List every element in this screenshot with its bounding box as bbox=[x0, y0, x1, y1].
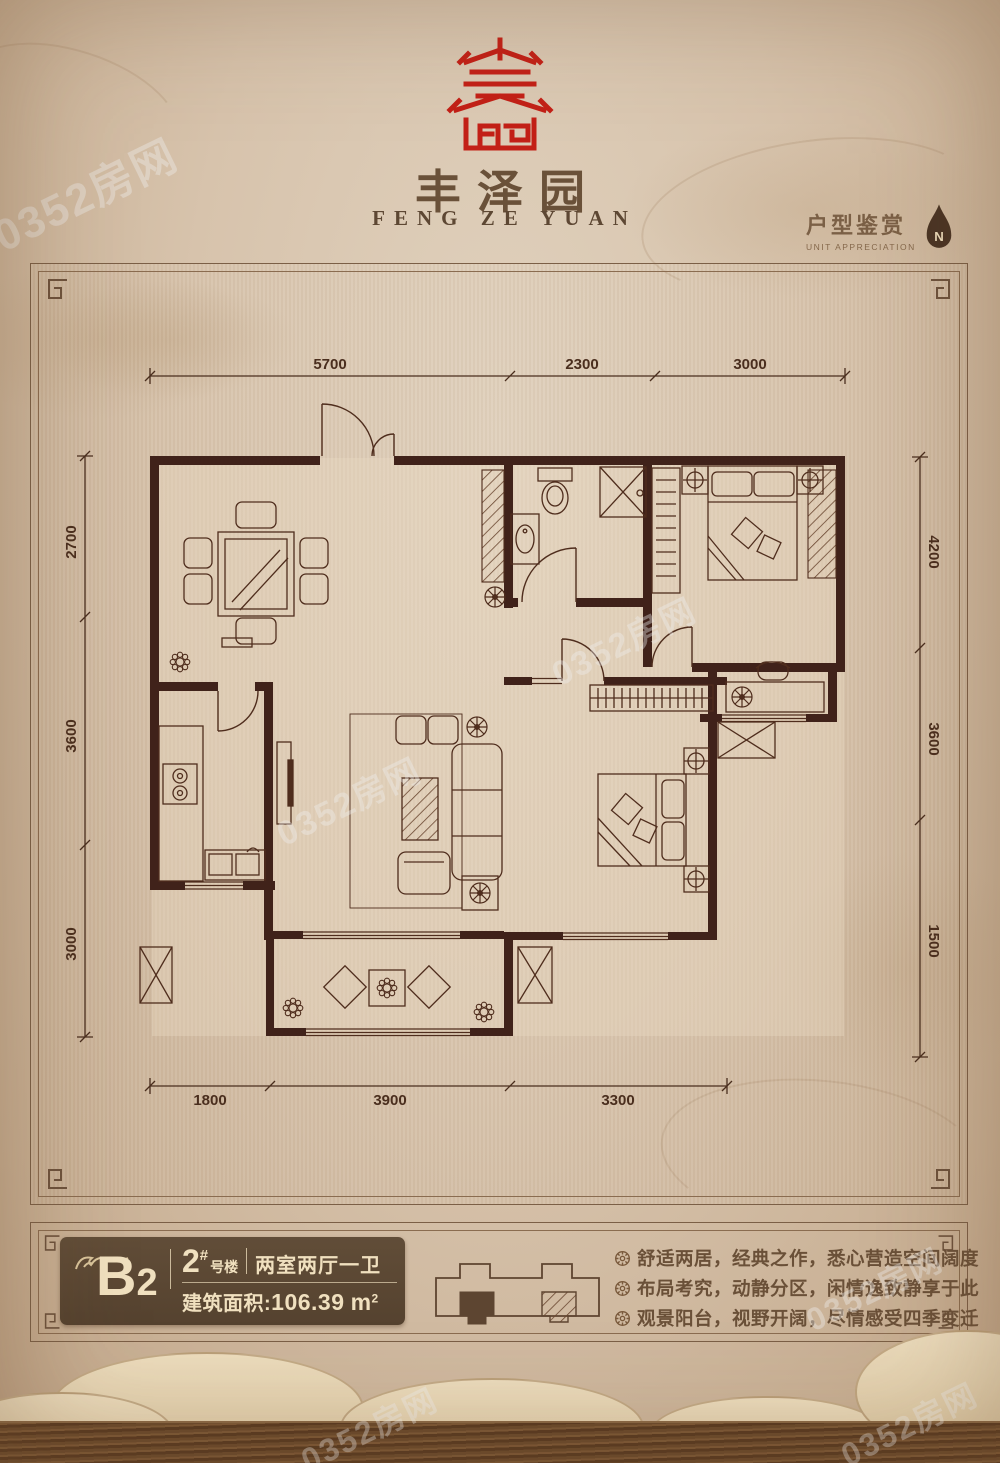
building-number-sup: # bbox=[200, 1247, 208, 1264]
unit-badge: B2 2 # 号楼 两室两厅一卫 建筑面积:106.39 m2 bbox=[60, 1237, 405, 1325]
unit-code: B2 bbox=[96, 1243, 158, 1308]
feature-list: 舒适两居，经典之作，悉心营造空间阔度 布局考究，动静分区，闲情逸致静享于此 观景… bbox=[614, 1243, 964, 1333]
dim-right-3: 1500 bbox=[925, 924, 942, 957]
dim-top-2: 2300 bbox=[565, 356, 598, 373]
badge-divider bbox=[170, 1249, 171, 1289]
dim-top-1: 5700 bbox=[313, 356, 346, 373]
poster-page: 丰泽园 FENG ZE YUAN 户型鉴赏 UNIT APPRECIATION … bbox=[0, 0, 1000, 1463]
feature-item: 观景阳台，视野开阔，尽情感受四季变迁 bbox=[614, 1303, 964, 1333]
medallion-icon bbox=[614, 1310, 631, 1327]
corner-ornament bbox=[41, 1311, 61, 1331]
building-suffix: 号楼 bbox=[210, 1257, 238, 1277]
unit-code-main: B bbox=[96, 1244, 136, 1307]
area-number: 106.39 bbox=[271, 1289, 344, 1315]
building-row: 2 # 号楼 两室两厅一卫 bbox=[182, 1243, 397, 1279]
building-key-icon bbox=[430, 1248, 605, 1330]
feature-text: 布局考究，动静分区，闲情逸致静享于此 bbox=[637, 1275, 979, 1301]
feature-item: 布局考究，动静分区，闲情逸致静享于此 bbox=[614, 1273, 964, 1303]
feature-text: 舒适两居，经典之作，悉心营造空间阔度 bbox=[637, 1245, 979, 1271]
unit-layout: 两室两厅一卫 bbox=[255, 1249, 381, 1278]
badge-divider-2 bbox=[246, 1248, 247, 1274]
area-unit: m bbox=[351, 1289, 372, 1315]
dim-left-2: 3600 bbox=[63, 719, 80, 752]
feature-item: 舒适两居，经典之作，悉心营造空间阔度 bbox=[614, 1243, 964, 1273]
area-unit-exp: 2 bbox=[372, 1291, 379, 1305]
medallion-icon bbox=[614, 1280, 631, 1297]
dim-top-3: 3000 bbox=[733, 356, 766, 373]
wood-grain-bar bbox=[0, 1421, 1000, 1463]
medallion-icon bbox=[614, 1250, 631, 1267]
dim-bottom-2: 3900 bbox=[373, 1092, 406, 1109]
building-number: 2 bbox=[182, 1243, 200, 1280]
dim-left-1: 2700 bbox=[63, 525, 80, 558]
corner-ornament bbox=[41, 1233, 61, 1253]
area-label: 建筑面积: bbox=[182, 1293, 271, 1315]
dim-right-2: 3600 bbox=[925, 722, 942, 755]
feature-text: 观景阳台，视野开阔，尽情感受四季变迁 bbox=[637, 1305, 979, 1331]
dim-bottom-1: 1800 bbox=[193, 1092, 226, 1109]
area-row: 建筑面积:106.39 m2 bbox=[182, 1287, 397, 1316]
dim-bottom-3: 3300 bbox=[601, 1092, 634, 1109]
dim-right-1: 4200 bbox=[925, 535, 942, 568]
dim-left-3: 3000 bbox=[63, 927, 80, 960]
badge-rule bbox=[182, 1282, 397, 1283]
unit-code-sub: 2 bbox=[136, 1262, 157, 1304]
